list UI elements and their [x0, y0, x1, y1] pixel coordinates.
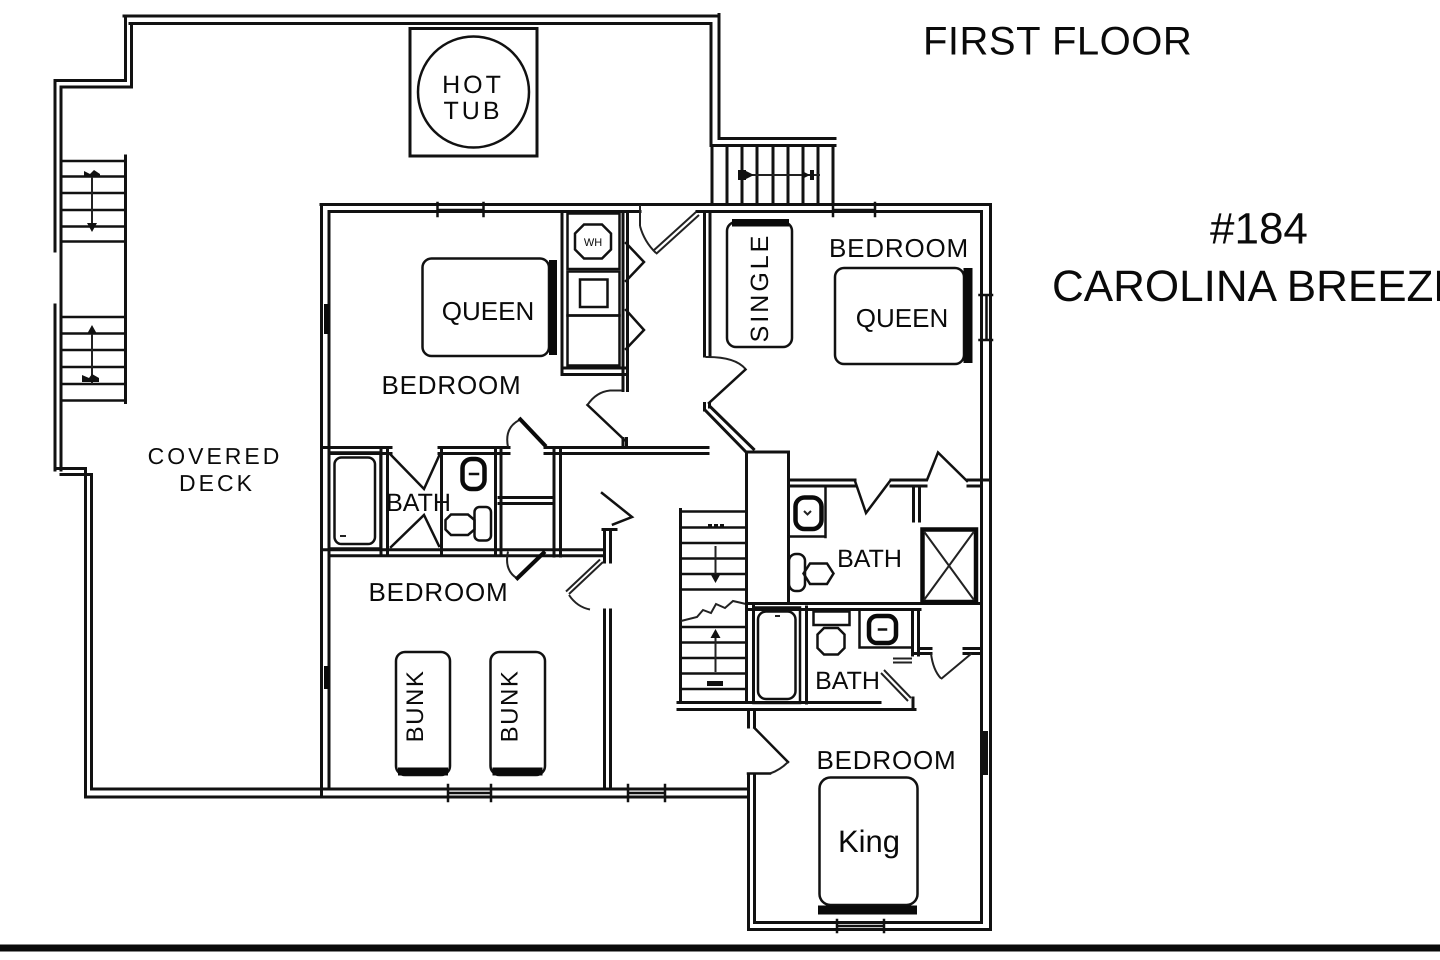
svg-text:BATH: BATH	[837, 545, 902, 573]
svg-text:QUEEN: QUEEN	[856, 303, 948, 333]
svg-text:DECK: DECK	[179, 470, 255, 496]
svg-text:BEDROOM: BEDROOM	[382, 370, 522, 400]
svg-text:BEDROOM: BEDROOM	[369, 577, 509, 607]
svg-text:TUB: TUB	[444, 97, 503, 125]
svg-text:QUEEN: QUEEN	[442, 296, 534, 326]
svg-text:#184: #184	[1210, 205, 1308, 254]
svg-text:FIRST FLOOR: FIRST FLOOR	[923, 20, 1192, 64]
svg-text:SINGLE: SINGLE	[746, 233, 774, 343]
svg-text:WH: WH	[584, 237, 602, 249]
svg-text:BEDROOM: BEDROOM	[817, 745, 957, 775]
svg-text:HOT: HOT	[442, 71, 504, 99]
svg-text:BATH: BATH	[815, 667, 880, 695]
svg-text:CAROLINA BREEZE: CAROLINA BREEZE	[1052, 262, 1440, 311]
svg-text:BUNK: BUNK	[497, 670, 524, 743]
svg-text:COVERED: COVERED	[148, 443, 283, 469]
svg-text:BUNK: BUNK	[402, 670, 429, 743]
svg-text:BEDROOM: BEDROOM	[829, 233, 969, 263]
svg-text:King: King	[838, 824, 900, 859]
